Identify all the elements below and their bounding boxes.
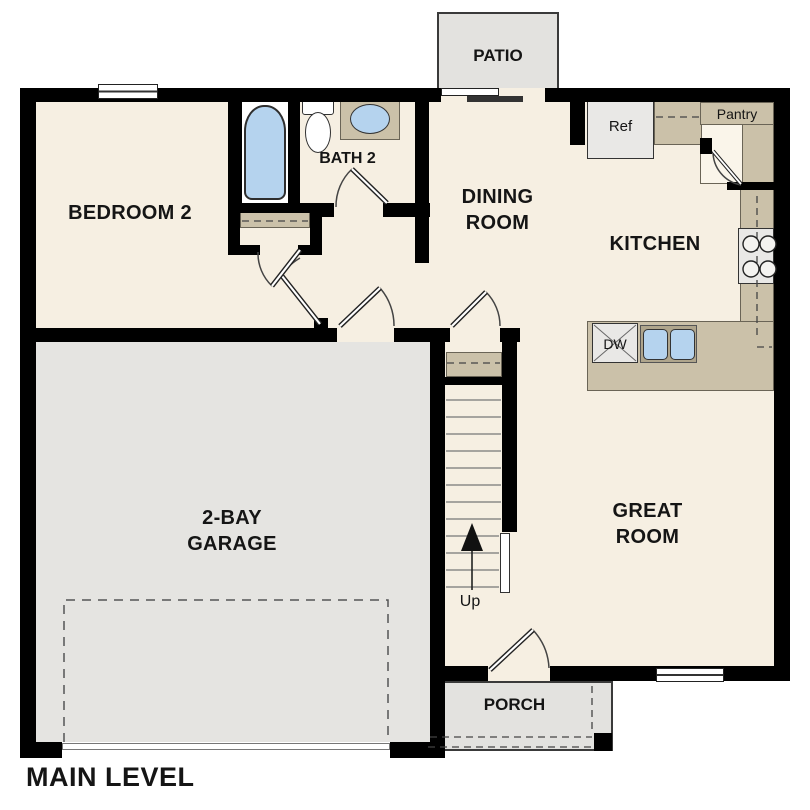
garage-door-panel (62, 743, 390, 750)
opening-coat-closet-door (450, 328, 500, 342)
kitchen-sink-bowl-left (643, 329, 668, 360)
dining-label: DINING ROOM (440, 184, 555, 236)
dining-label-line2: ROOM (440, 210, 555, 236)
wall-bath-east (415, 102, 429, 263)
garage-label: 2-BAY GARAGE (172, 505, 292, 557)
garage-label-line2: GARAGE (172, 531, 292, 557)
wall-dining-kitchen-stub (570, 102, 585, 145)
pantry-shelf-right (742, 124, 774, 184)
garage-label-line1: 2-BAY (172, 505, 292, 531)
wall-right (774, 88, 790, 681)
pantry-interior (700, 124, 744, 184)
greatroom-window (656, 668, 724, 682)
wall-garage-top (36, 328, 520, 342)
wall-stair-right (502, 342, 517, 532)
wall-alcove-bottom (228, 203, 322, 213)
ref-label: Ref (587, 117, 654, 137)
porch-label: PORCH (462, 694, 567, 716)
opening-bath-door (334, 203, 383, 217)
wall-bath-south-b (398, 203, 430, 217)
floor-plan: BEDROOM 2 BATH 2 DINING ROOM KITCHEN GRE… (0, 0, 810, 810)
wall-under-stair-closet (430, 377, 517, 385)
kitchen-sink-bowl-right (670, 329, 695, 360)
wall-bath-door-stub (383, 203, 398, 217)
pantry-label: Pantry (700, 105, 774, 123)
wall-pantry-corner-stub (700, 138, 712, 154)
wall-bath-south-a (322, 203, 334, 217)
wall-closet-bottom-right (298, 245, 322, 255)
greatroom-label-line2: ROOM (595, 524, 700, 550)
stair-railing (500, 533, 510, 593)
kitchen-label: KITCHEN (590, 231, 720, 257)
bath2-label: BATH 2 (300, 149, 395, 170)
wall-garage-right (430, 328, 445, 758)
opening-front-door (488, 666, 550, 681)
slider-panel-inner (467, 96, 523, 102)
greatroom-label-line1: GREAT (595, 498, 700, 524)
wall-bedroom-door-stub (314, 318, 328, 330)
wall-bedroom-bath (228, 88, 242, 203)
coat-closet-shelf (446, 352, 502, 377)
wall-pantry-bottom (727, 182, 774, 190)
toilet-bowl (305, 112, 331, 153)
vanity-sink (350, 104, 390, 134)
main-level-label: MAIN LEVEL (26, 760, 286, 795)
bedroom-window (98, 84, 158, 99)
slider-panel-outer (441, 88, 499, 96)
patio-label: PATIO (437, 45, 559, 67)
dining-label-line1: DINING (440, 184, 555, 210)
stove (738, 228, 774, 284)
opening-garage-hall-door (337, 328, 394, 342)
bathtub (244, 105, 286, 200)
bedroom2-label: BEDROOM 2 (40, 200, 220, 226)
dw-label: DW (592, 335, 638, 353)
greatroom-label: GREAT ROOM (595, 498, 700, 550)
wall-greatroom-bottom (430, 666, 790, 681)
wall-left (20, 88, 36, 758)
ref-side-counter (654, 98, 702, 145)
wall-closet-bottom-left (228, 245, 260, 255)
wall-alcove-right (288, 102, 300, 203)
up-label: Up (452, 592, 488, 613)
